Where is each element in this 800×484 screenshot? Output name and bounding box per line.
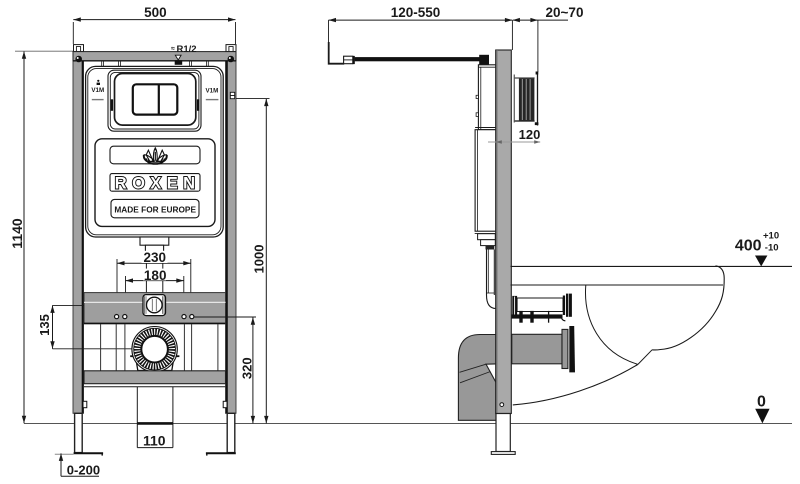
svg-text:1000: 1000 (251, 245, 266, 274)
svg-text:0-200: 0-200 (67, 462, 100, 477)
svg-text:20~70: 20~70 (546, 5, 584, 20)
svg-text:MADE FOR EUROPE: MADE FOR EUROPE (114, 205, 196, 215)
svg-text:120-550: 120-550 (391, 5, 441, 20)
svg-text:0: 0 (757, 394, 766, 411)
svg-text:180: 180 (144, 268, 167, 283)
svg-text:135: 135 (37, 314, 52, 336)
svg-text:110: 110 (143, 432, 166, 448)
svg-text:V1M: V1M (206, 88, 219, 95)
svg-text:500: 500 (144, 5, 167, 20)
svg-text:230: 230 (144, 250, 167, 265)
svg-text:ROXEN: ROXEN (115, 174, 201, 192)
svg-text:≈: ≈ (171, 46, 175, 53)
svg-text:400: 400 (735, 237, 762, 254)
svg-text:320: 320 (239, 357, 254, 379)
svg-text:1140: 1140 (9, 218, 25, 249)
svg-text:+10: +10 (763, 231, 779, 242)
svg-text:R1/2: R1/2 (177, 44, 197, 55)
svg-text:120: 120 (519, 127, 541, 142)
svg-text:V1M: V1M (91, 87, 104, 94)
svg-text:-10: -10 (765, 243, 779, 254)
